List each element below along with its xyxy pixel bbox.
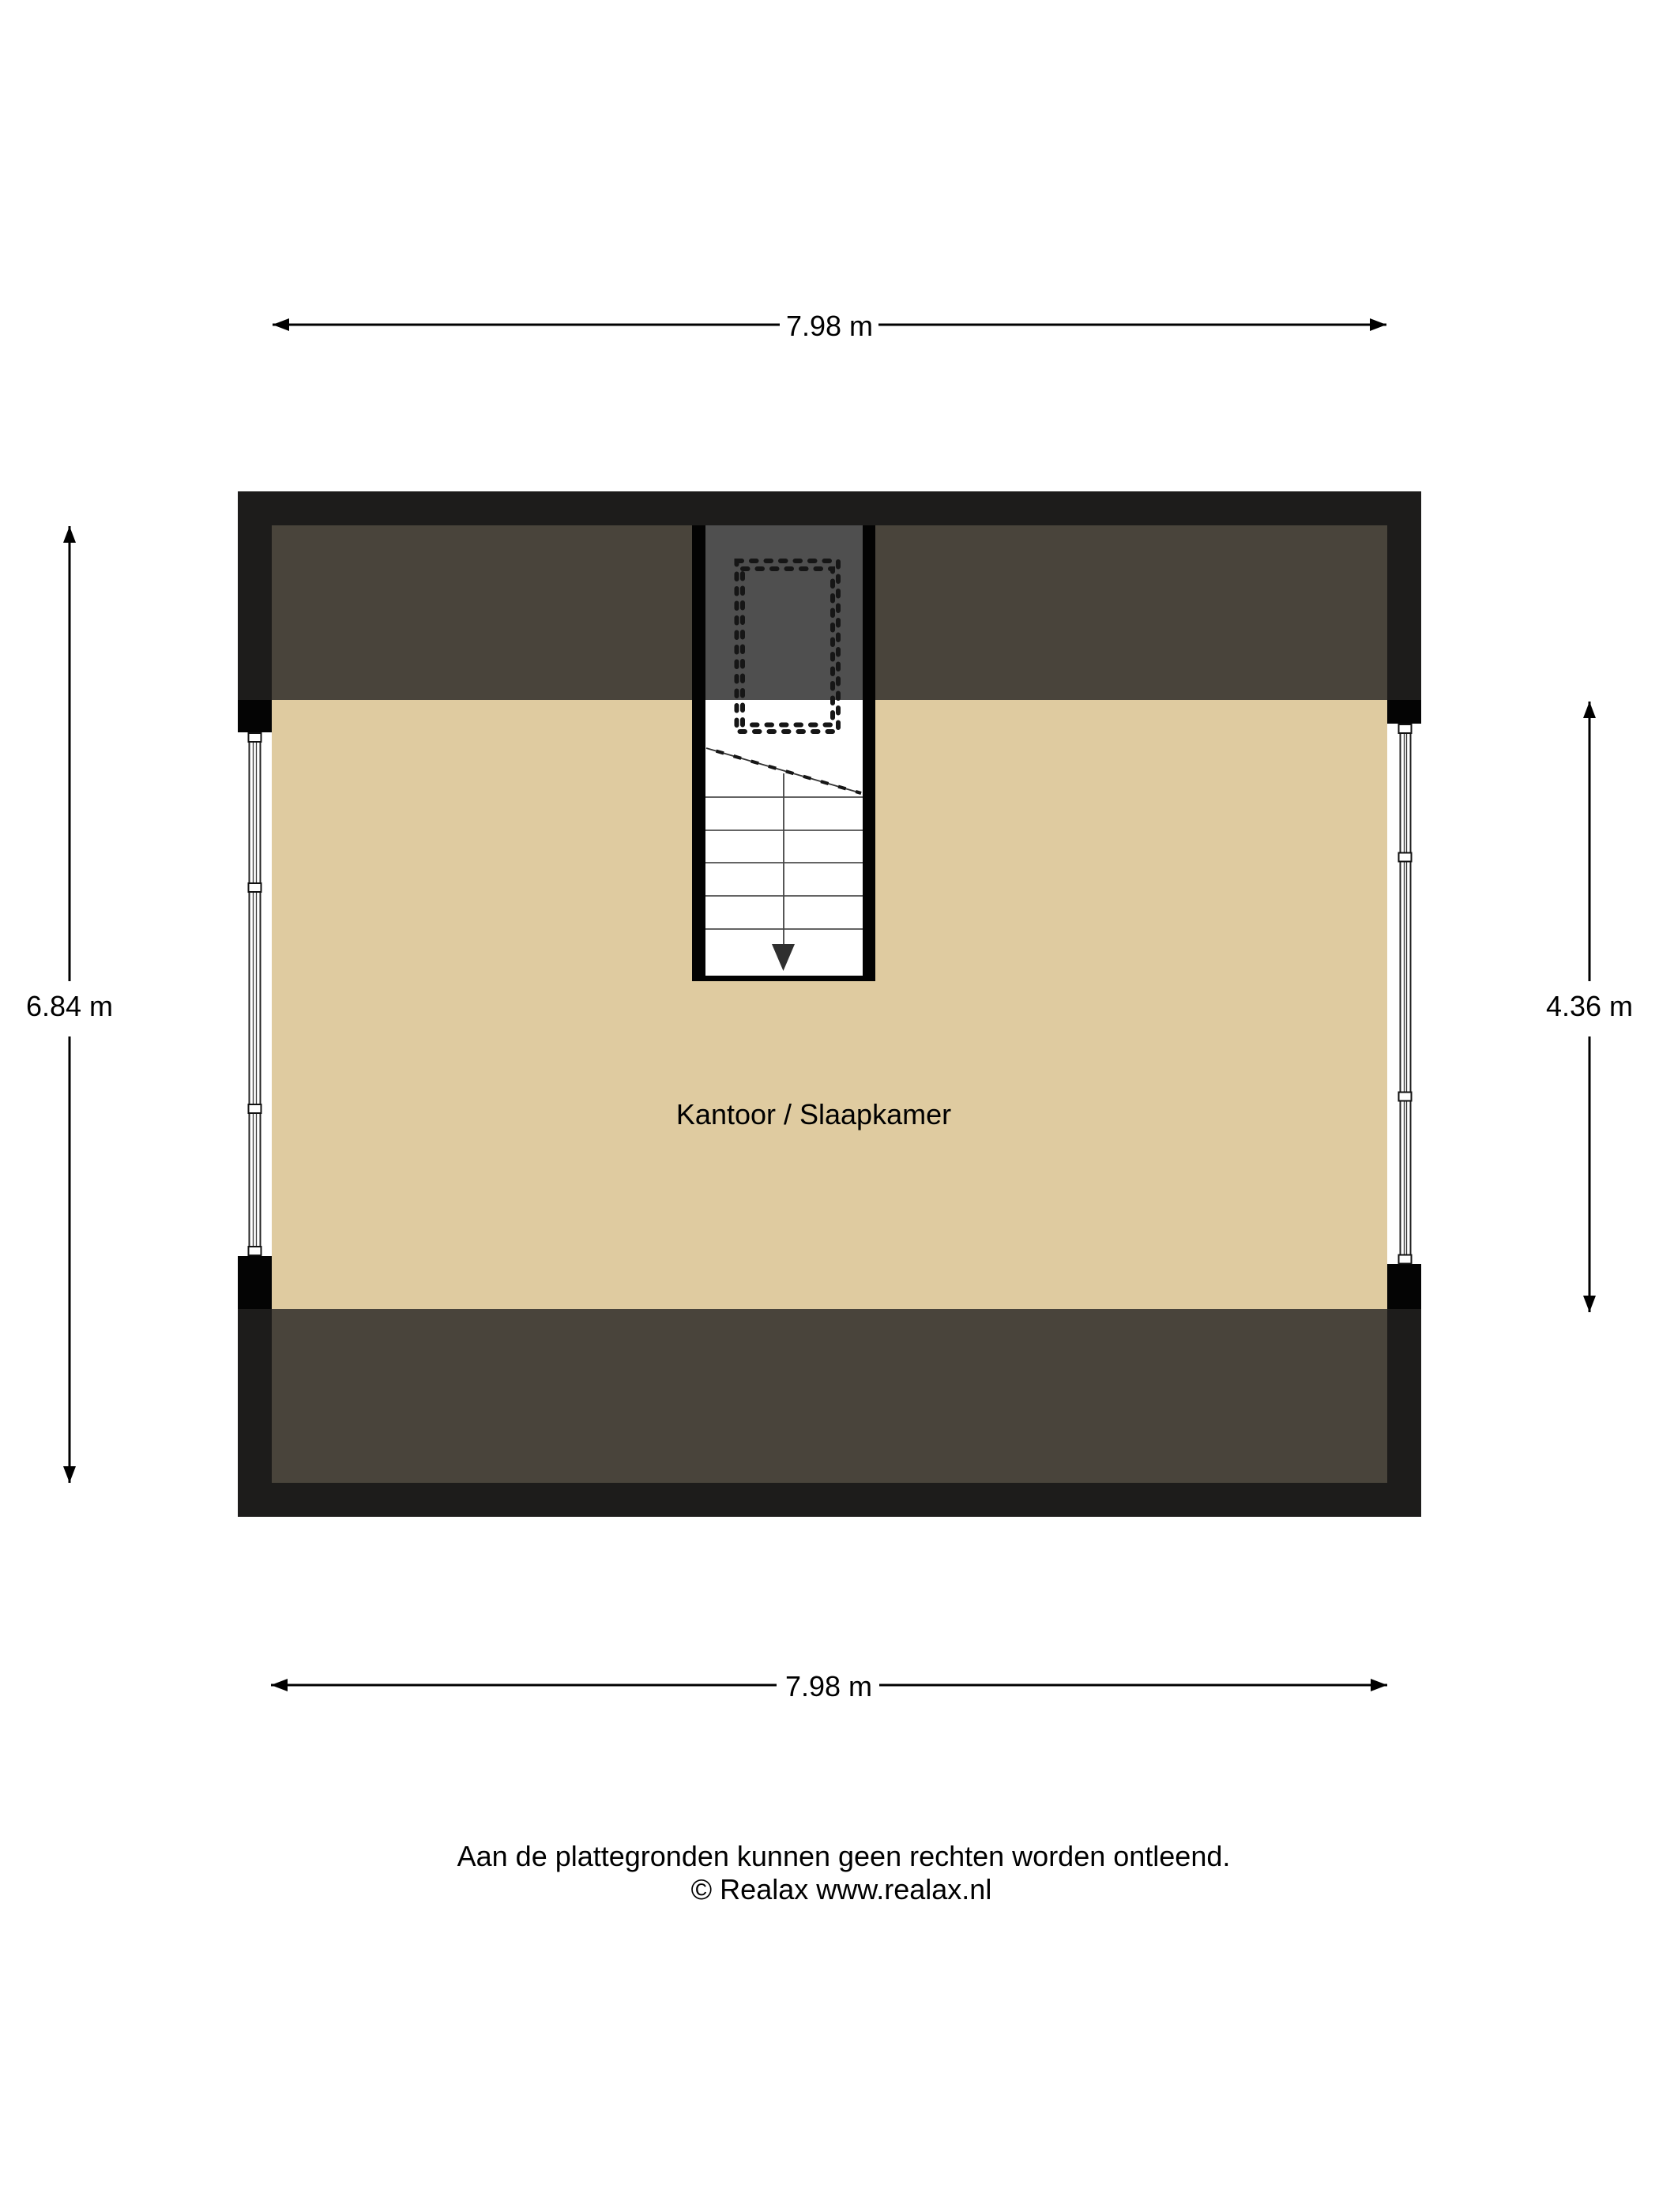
svg-text:Kantoor / Slaapkamer: Kantoor / Slaapkamer (676, 1098, 951, 1130)
svg-text:7.98 m: 7.98 m (785, 1670, 872, 1702)
svg-text:4.36 m: 4.36 m (1546, 990, 1633, 1022)
svg-text:7.98 m: 7.98 m (786, 310, 873, 342)
svg-text:6.84 m: 6.84 m (26, 990, 113, 1022)
svg-text:Aan de plattegronden kunnen ge: Aan de plattegronden kunnen geen rechten… (457, 1840, 1231, 1872)
svg-text:© Realax www.realax.nl: © Realax www.realax.nl (691, 1873, 992, 1905)
